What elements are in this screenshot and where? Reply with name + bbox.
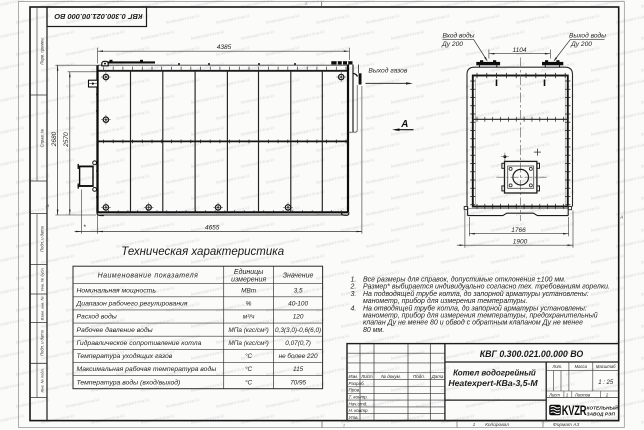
svg-text:4385: 4385 <box>217 44 232 51</box>
svg-text:А: А <box>400 119 408 130</box>
svg-text:1: 1 <box>473 422 476 428</box>
svg-text:Температура воды (вход/выход): Температура воды (вход/выход) <box>77 378 181 386</box>
svg-text:Пров.: Пров. <box>349 388 361 393</box>
svg-text:Лист: Лист <box>548 392 560 397</box>
svg-text:клапан Ду не менее 80 и обвод: клапан Ду не менее 80 и обвод с обратным… <box>363 319 583 327</box>
svg-text:А: А <box>619 215 623 220</box>
svg-text:Лист: Лист <box>360 374 373 379</box>
svg-text:Взам. инв. №: Взам. инв. № <box>40 295 45 320</box>
svg-text:А: А <box>45 203 49 208</box>
svg-text:°С: °С <box>245 365 253 373</box>
svg-text:№ докум.: № докум. <box>381 374 401 379</box>
svg-text:манометр, прибор для измерения: манометр, прибор для измерения температу… <box>363 312 598 320</box>
svg-text:Температура уходящих газов: Температура уходящих газов <box>77 352 173 360</box>
svg-text:Значение: Значение <box>283 273 314 280</box>
svg-text:Рабочее давление воды: Рабочее давление воды <box>77 326 153 334</box>
svg-text:Н. контр.: Н. контр. <box>349 408 369 413</box>
svg-text:2680: 2680 <box>51 131 58 147</box>
svg-text:1.: 1. <box>351 277 357 284</box>
svg-text:ЗАВОД РЭП: ЗАВОД РЭП <box>587 411 616 417</box>
svg-text:Выход воды: Выход воды <box>569 32 606 40</box>
svg-text:Диапазон рабочего регулировани: Диапазон рабочего регулирования <box>76 300 188 308</box>
svg-text:Подп. и дата: Подп. и дата <box>40 225 45 251</box>
svg-text:МВт: МВт <box>241 287 257 294</box>
svg-text:°С: °С <box>245 352 253 360</box>
svg-text:1104: 1104 <box>513 47 527 54</box>
svg-text:Наименование показателя: Наименование показателя <box>98 273 199 280</box>
svg-text:Нач.отд.: Нач.отд. <box>349 401 368 406</box>
svg-text:Котел водогрейный: Котел водогрейный <box>453 369 536 378</box>
svg-text:°С: °С <box>245 378 253 386</box>
svg-text:Максимальная рабочая температу: Максимальная рабочая температура воды <box>77 365 217 373</box>
svg-text:120: 120 <box>293 314 304 321</box>
svg-text:м³/ч: м³/ч <box>243 314 255 321</box>
svg-text:Утв.: Утв. <box>349 415 359 420</box>
svg-text:80 мм.: 80 мм. <box>363 327 384 334</box>
svg-text:Единицы: Единицы <box>234 268 264 276</box>
svg-text:0,07(0,7): 0,07(0,7) <box>285 340 311 347</box>
svg-text:Справ. №: Справ. № <box>40 128 45 147</box>
svg-text:3.: 3. <box>351 291 357 298</box>
svg-text:КВГ 0.300.021.00.000 ВО: КВГ 0.300.021.00.000 ВО <box>480 349 584 359</box>
svg-text:40-100: 40-100 <box>288 301 308 308</box>
svg-text:Разраб.: Разраб. <box>349 381 365 386</box>
svg-text:Выход газов: Выход газов <box>368 66 407 74</box>
svg-text:Инв. № подл.: Инв. № подл. <box>40 368 45 392</box>
svg-text:115: 115 <box>293 366 304 373</box>
svg-text:КВГ 0.300.021.00.000 ВО: КВГ 0.300.021.00.000 ВО <box>54 12 142 21</box>
svg-text:Номинальная мощность: Номинальная мощность <box>77 287 157 294</box>
svg-text:Дата: Дата <box>431 374 444 379</box>
svg-text:Изм.: Изм. <box>348 374 358 379</box>
svg-text:1 : 25: 1 : 25 <box>598 380 614 386</box>
svg-text:не более 220: не более 220 <box>279 352 318 360</box>
svg-text:1: 1 <box>566 392 568 397</box>
svg-text:Перв. примен.: Перв. примен. <box>40 37 45 64</box>
svg-text:Размер* выбирается индивидуаль: Размер* выбирается индивидуально согласн… <box>363 283 610 291</box>
svg-text:1900: 1900 <box>513 238 528 245</box>
svg-text:Все размеры для справок, допус: Все размеры для справок, допустимые откл… <box>363 276 566 284</box>
svg-text:Копировал: Копировал <box>485 422 509 428</box>
svg-text:Лит.: Лит. <box>551 364 562 369</box>
svg-text:На отводящей трубе котла, до з: На отводящей трубе котла, до запорной ар… <box>363 304 587 312</box>
svg-text:Ду 200: Ду 200 <box>441 41 463 48</box>
svg-text:Т. контр.: Т. контр. <box>349 395 368 400</box>
svg-text:2570: 2570 <box>63 132 70 148</box>
svg-text:Heatexpert-КВа-3,5-М: Heatexpert-КВа-3,5-М <box>448 378 538 388</box>
svg-text:Инв. № дубл.: Инв. № дубл. <box>40 267 45 291</box>
svg-text:70/95: 70/95 <box>290 379 306 386</box>
svg-text:МПа (кгс/см²): МПа (кгс/см²) <box>228 340 268 347</box>
svg-text:%: % <box>246 301 252 308</box>
svg-text:Подп. и дата: Подп. и дата <box>40 329 45 355</box>
svg-text:Формат А3: Формат А3 <box>553 422 580 428</box>
svg-text:0,3(3,0)-0,6(6,0): 0,3(3,0)-0,6(6,0) <box>275 327 321 334</box>
svg-text:3,5: 3,5 <box>294 287 303 294</box>
svg-text:Расход воды: Расход воды <box>77 313 117 321</box>
svg-text:Техническая характеристика: Техническая характеристика <box>121 246 284 258</box>
svg-text:Масса: Масса <box>575 364 588 369</box>
svg-text:Гидравлическое сопротивление к: Гидравлическое сопротивление котла <box>77 339 202 347</box>
svg-text:4655: 4655 <box>205 225 220 232</box>
svg-text:4.: 4. <box>351 305 357 312</box>
svg-text:1766: 1766 <box>511 227 526 234</box>
svg-text:Листов: Листов <box>574 392 591 397</box>
svg-text:МПа (кгс/см²): МПа (кгс/см²) <box>228 327 268 334</box>
svg-text:2.: 2. <box>350 284 357 291</box>
svg-text:Ду 200: Ду 200 <box>570 41 592 48</box>
svg-text:Вход воды: Вход воды <box>442 32 474 40</box>
svg-text:На подводящей трубе котла, до: На подводящей трубе котла, до запорной а… <box>363 290 589 298</box>
svg-text:Подп.: Подп. <box>413 374 425 379</box>
svg-text:KVZR: KVZR <box>562 402 587 419</box>
svg-text:Масштаб: Масштаб <box>596 364 616 369</box>
svg-text:манометр, прибор для измерения: манометр, прибор для измерения температу… <box>363 297 528 305</box>
svg-text:измерения: измерения <box>231 277 266 284</box>
